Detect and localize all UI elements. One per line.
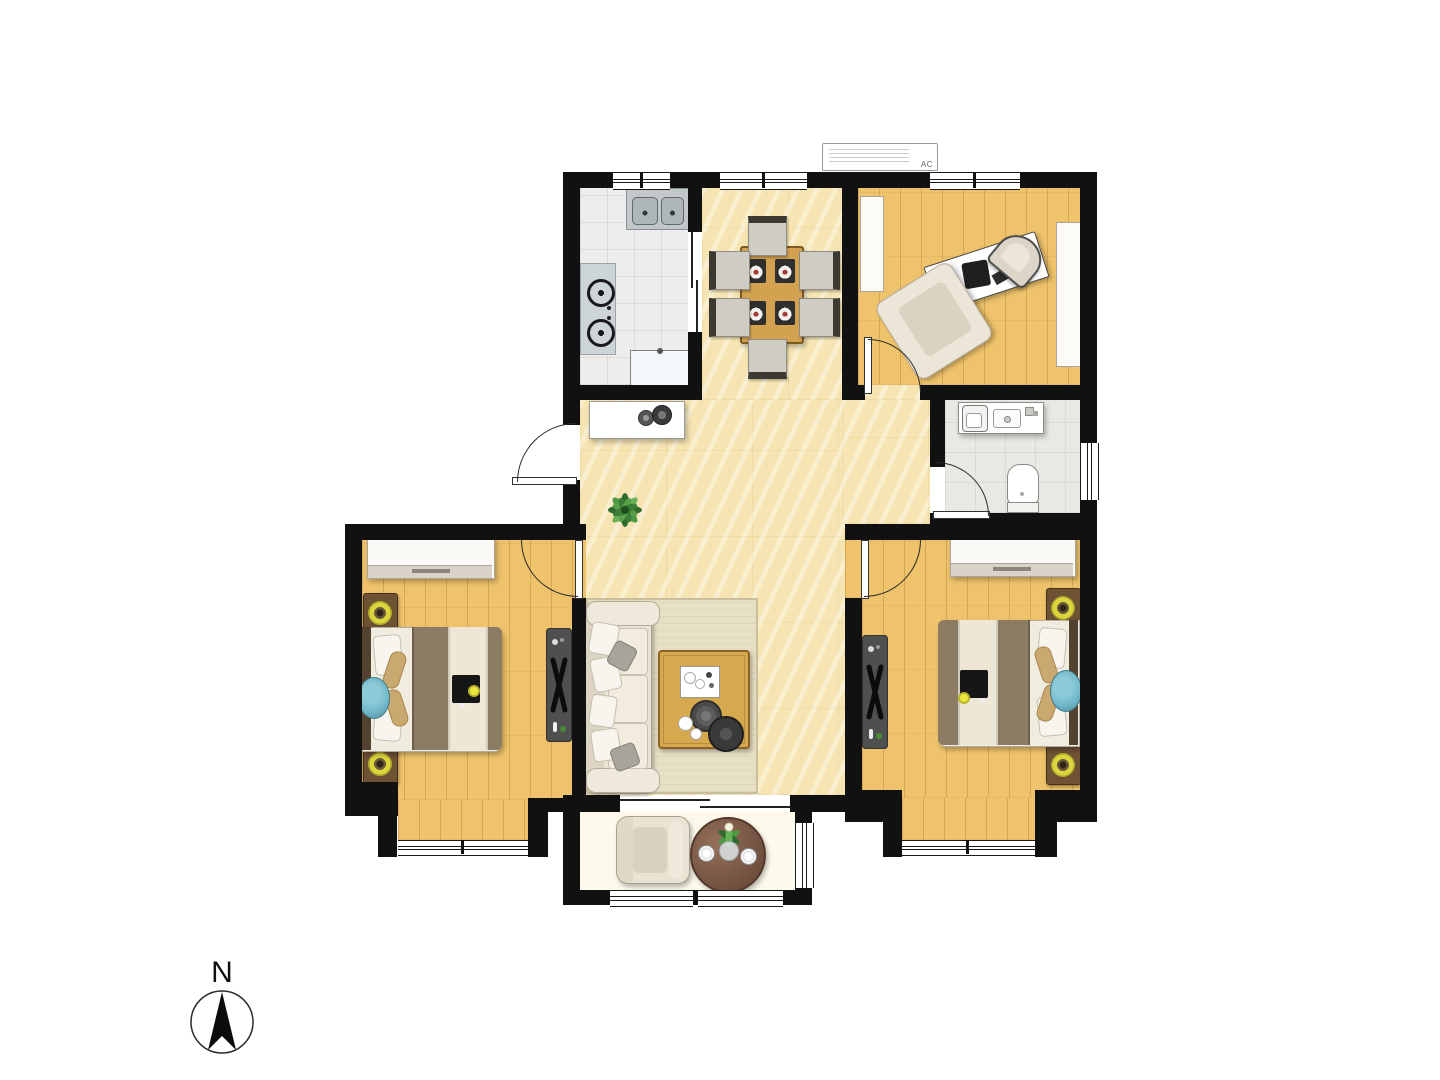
wall xyxy=(842,385,865,400)
wall xyxy=(930,400,945,467)
coffee-table xyxy=(658,650,750,749)
corridor-floor xyxy=(842,400,930,524)
wall xyxy=(1080,188,1097,443)
tv-stand-right xyxy=(862,635,888,749)
wardrobe-left xyxy=(367,537,495,579)
toiletries xyxy=(1033,411,1038,416)
kitchen-sink-counter xyxy=(626,188,690,230)
basin-drain xyxy=(1004,416,1011,423)
bathroom-vanity xyxy=(958,402,1044,434)
wall xyxy=(920,385,1097,400)
ac-label: AC xyxy=(921,160,933,169)
dining-chair xyxy=(799,251,840,290)
balcony-table xyxy=(690,817,766,893)
coffee-table-tray xyxy=(680,666,720,698)
console-bowl xyxy=(652,405,672,425)
window-mullion xyxy=(640,172,643,188)
round-cushion xyxy=(1050,670,1082,712)
placemat xyxy=(775,301,795,325)
dining-chair xyxy=(709,251,750,290)
tray-item xyxy=(709,683,714,688)
study-cabinet-left xyxy=(860,196,884,292)
wardrobe-slot xyxy=(993,567,1031,571)
wall xyxy=(563,172,613,188)
stove xyxy=(580,263,616,355)
wall xyxy=(572,598,586,798)
decor-bowl xyxy=(708,716,744,752)
kitchen-sliding-door xyxy=(688,232,702,332)
washer-drum xyxy=(966,413,982,428)
study-cabinet-right xyxy=(1056,222,1081,367)
wall xyxy=(807,172,930,188)
tray-plate xyxy=(695,679,705,689)
hall-console xyxy=(589,401,685,439)
washing-machine-icon xyxy=(962,405,988,432)
wall xyxy=(845,790,902,822)
wall xyxy=(845,598,862,798)
toilet-flush xyxy=(1020,492,1024,496)
dining-chair xyxy=(799,298,840,337)
white-accent xyxy=(980,698,985,703)
compass: N xyxy=(180,950,264,1060)
sofa xyxy=(586,601,666,791)
lamp-icon xyxy=(1050,595,1076,621)
window xyxy=(1080,443,1099,500)
armchair-cushion xyxy=(633,827,667,873)
floor-plan: AC N xyxy=(0,0,1440,1080)
yellow-accent xyxy=(468,685,480,697)
balcony-window xyxy=(795,823,814,888)
tv-stand-left xyxy=(546,628,572,742)
wall xyxy=(378,816,397,857)
burner-icon xyxy=(587,319,615,347)
white-accent xyxy=(460,703,465,708)
fridge xyxy=(630,350,689,389)
wall xyxy=(883,822,902,857)
fridge-handle xyxy=(657,348,663,354)
wall xyxy=(783,890,812,905)
wall xyxy=(842,188,858,385)
window-mullion xyxy=(461,840,464,854)
balcony-sliding-door xyxy=(620,797,790,810)
wall xyxy=(670,172,720,188)
potted-plant-icon xyxy=(598,484,652,536)
toilet-bowl xyxy=(1007,464,1039,504)
lamp-icon xyxy=(1050,752,1076,778)
round-cushion xyxy=(358,677,390,719)
stove-knob xyxy=(607,306,611,310)
lamp-icon xyxy=(367,751,393,777)
balcony-window xyxy=(610,890,693,907)
bedroom-right-bay-floor xyxy=(902,798,1035,840)
bedroom-right-door-threshold xyxy=(845,540,862,598)
tray-item xyxy=(706,672,712,678)
nightstand xyxy=(1046,745,1081,785)
stove-knob xyxy=(607,316,611,320)
window-mullion xyxy=(966,840,969,854)
vase xyxy=(719,841,739,861)
wall xyxy=(688,188,702,232)
sofa-pillow xyxy=(588,693,618,728)
wall xyxy=(345,524,362,816)
wardrobe-right xyxy=(950,537,1076,577)
sofa-armrest-bottom xyxy=(586,768,660,793)
compass-north-label: N xyxy=(211,956,233,989)
window-mullion xyxy=(762,172,765,188)
decor-plate xyxy=(678,716,693,731)
dining-chair xyxy=(748,339,787,379)
armchair-front xyxy=(669,821,683,879)
yellow-accent xyxy=(958,692,970,704)
ac-vents xyxy=(829,148,909,162)
wall xyxy=(345,524,586,540)
burner-icon xyxy=(587,279,615,307)
wall xyxy=(795,795,812,823)
balcony-window xyxy=(698,890,783,907)
dining-chair xyxy=(709,298,750,337)
wall xyxy=(1020,172,1097,188)
bed-left xyxy=(362,627,500,750)
wall xyxy=(1080,528,1097,812)
wash-basin xyxy=(993,409,1021,428)
wall xyxy=(563,385,702,400)
ac-unit: AC xyxy=(822,143,938,171)
entry-door-swing xyxy=(517,423,576,482)
study-armchair-cushion xyxy=(897,280,974,358)
wall xyxy=(688,332,702,385)
toilet xyxy=(1007,464,1037,512)
wall xyxy=(845,524,1097,540)
window-mullion xyxy=(973,172,976,188)
dining-chair xyxy=(748,216,787,256)
placemat xyxy=(775,259,795,283)
lamp-icon xyxy=(367,600,393,626)
sink-basin xyxy=(661,197,684,225)
wardrobe-slot xyxy=(412,569,450,573)
wall xyxy=(1035,790,1097,822)
toilet-tank xyxy=(1007,502,1039,513)
wall xyxy=(563,890,610,905)
wall xyxy=(345,782,398,816)
bed-right xyxy=(938,620,1078,745)
armchair-back xyxy=(617,817,633,883)
desk-chair-cushion xyxy=(999,238,1034,273)
decor-plate xyxy=(690,728,702,740)
sink-basin xyxy=(632,197,658,225)
wall xyxy=(563,795,580,905)
balcony-armchair xyxy=(616,816,690,884)
bedroom-left-bay-floor xyxy=(398,800,528,840)
laptop-icon xyxy=(961,259,991,289)
